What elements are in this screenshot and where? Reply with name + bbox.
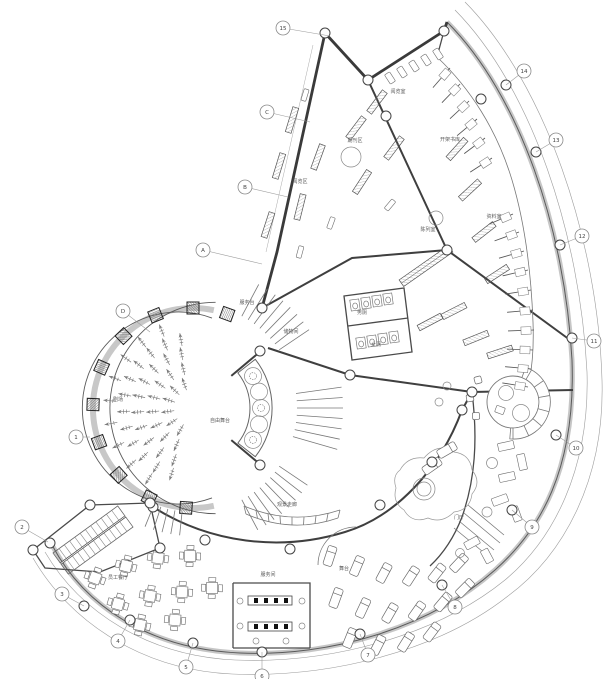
grid-bubble-label: 6	[260, 674, 264, 679]
label-toilet-f: 女厕	[371, 341, 381, 348]
grid-bubble: 8	[448, 600, 462, 614]
grid-bubble: A	[196, 243, 210, 257]
grid-bubble: 12	[575, 229, 589, 243]
label-open-stacks: 开架书库	[440, 136, 460, 143]
grid-bubble: 9	[525, 520, 539, 534]
theater-ring	[82, 302, 215, 513]
grid-bubble-label: 1	[74, 435, 78, 441]
grid-bubble-label: 3	[60, 592, 64, 598]
grid-bubble: 4	[111, 634, 125, 648]
floor-plan-drawing: 15CBAD1234567891011121314 剧场 自由舞台 服务台 储物…	[0, 0, 608, 679]
grid-bubble: 10	[569, 441, 583, 455]
grid-bubble: C	[260, 105, 274, 119]
grid-bubble-label: 2	[20, 525, 24, 531]
grid-bubble: 15	[276, 21, 290, 35]
label-gallery: 观景走廊	[277, 501, 297, 508]
grid-bubble: D	[116, 304, 130, 318]
grid-bubble: 3	[55, 587, 69, 601]
label-toilet-m: 男厕	[357, 310, 367, 316]
label-reference-room: 资料室	[486, 213, 501, 220]
grid-bubble-label: 5	[184, 665, 188, 671]
label-free-stage: 自由舞台	[210, 417, 230, 424]
grid-bubble-label: A	[201, 248, 205, 254]
grid-bubble-label: 10	[573, 446, 580, 452]
grid-bubble-label: D	[121, 309, 125, 315]
grid-bubble-label: C	[265, 110, 269, 116]
label-storage: 储物间	[283, 328, 298, 335]
grid-bubble-label: 9	[530, 525, 534, 531]
walls	[33, 22, 573, 648]
grid-bubble: B	[238, 180, 252, 194]
grid-bubble-label: 4	[116, 639, 120, 645]
grid-bubble-label: 7	[366, 653, 370, 659]
label-staff-dining: 员工餐厅	[108, 574, 128, 581]
label-service-desk: 服务台	[239, 299, 254, 306]
grid-bubble: 6	[255, 669, 269, 679]
label-service-room: 服务间	[260, 571, 275, 578]
grid-bubble-label: 14	[521, 69, 528, 75]
label-reading-area: 阅览区	[292, 178, 307, 185]
grid-bubble-label: 13	[553, 138, 560, 144]
label-reading-room: 阅览室	[390, 88, 405, 95]
grid-bubble: 11	[587, 334, 601, 348]
grid-bubble-label: B	[243, 185, 247, 191]
stage	[231, 351, 272, 464]
label-small-stage: 舞台	[339, 565, 349, 572]
grid-bubble-label: 15	[280, 26, 287, 32]
grid-bubble: 7	[361, 648, 375, 662]
label-entry-hall: 门厅	[454, 514, 464, 521]
grid-bubble: 5	[179, 660, 193, 674]
grid-bubble: 14	[517, 64, 531, 78]
label-periodicals: 期刊区	[347, 137, 362, 144]
grid-bubble-label: 11	[591, 339, 598, 345]
grid-bubble-label: 8	[453, 605, 457, 611]
grid-bubble-label: 12	[579, 234, 586, 240]
label-display-room: 陈列室	[420, 226, 435, 233]
grid-bubble: 13	[549, 133, 563, 147]
grid-bubble: 2	[15, 520, 29, 534]
label-theater: 剧场	[113, 396, 123, 403]
grid-bubble: 1	[69, 430, 83, 444]
